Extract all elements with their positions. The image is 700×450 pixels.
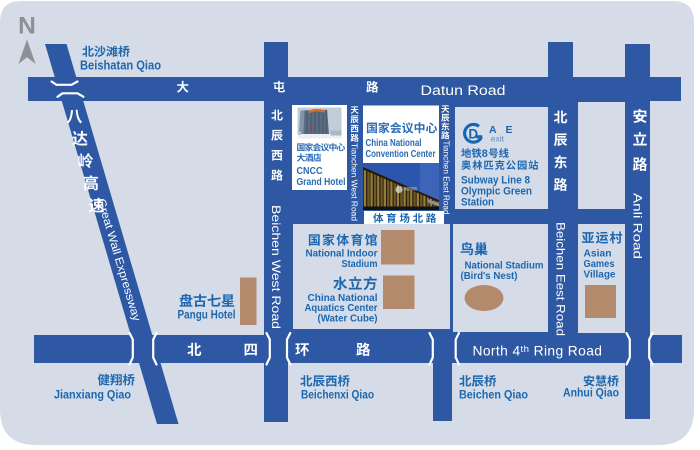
svg-text:Datun Road: Datun Road: [421, 83, 506, 98]
svg-text:N: N: [18, 13, 36, 40]
svg-text:(Water Cube): (Water Cube): [318, 314, 378, 325]
svg-text:CNCC: CNCC: [297, 166, 324, 177]
svg-text:Beichenxi Qiao: Beichenxi Qiao: [301, 390, 374, 402]
svg-text:(Bird's Nest): (Bird's Nest): [461, 271, 518, 282]
svg-text:Stadium: Stadium: [342, 259, 378, 270]
svg-text:Beichen West Road: Beichen West Road: [269, 205, 283, 329]
svg-text:Grand Hotel: Grand Hotel: [297, 177, 346, 188]
svg-text:Beishatan Qiao: Beishatan Qiao: [80, 58, 161, 73]
svg-text:Convention Center: Convention Center: [366, 149, 436, 160]
svg-text:China National: China National: [366, 138, 422, 149]
svg-text:National Stadium: National Stadium: [465, 261, 544, 272]
svg-text:Beichen Qiao: Beichen Qiao: [459, 390, 528, 402]
svg-text:Anhui Qiao: Anhui Qiao: [563, 388, 619, 400]
svg-text:Pangu Hotel: Pangu Hotel: [178, 310, 236, 322]
svg-text:China National: China National: [308, 293, 378, 304]
svg-text:Tianchen West Road: Tianchen West Road: [350, 143, 360, 221]
svg-text:Anli Road: Anli Road: [631, 193, 645, 259]
svg-text:Tianchen East Road: Tianchen East Road: [442, 141, 452, 215]
svg-text:Beichen Eest Road: Beichen Eest Road: [554, 222, 568, 336]
svg-text:Village: Village: [584, 270, 616, 281]
svg-text:8: 8: [482, 148, 488, 160]
svg-text:Games: Games: [584, 259, 615, 270]
svg-text:exit: exit: [491, 133, 505, 143]
svg-text:National Indoor: National Indoor: [306, 248, 378, 259]
svg-text:Asian: Asian: [584, 249, 612, 260]
svg-text:D: D: [468, 126, 478, 141]
svg-text:Jianxiang Qiao: Jianxiang Qiao: [54, 390, 131, 402]
svg-text:Station: Station: [461, 197, 494, 209]
svg-text:North 4th Ring Road: North 4th Ring Road: [473, 344, 603, 359]
